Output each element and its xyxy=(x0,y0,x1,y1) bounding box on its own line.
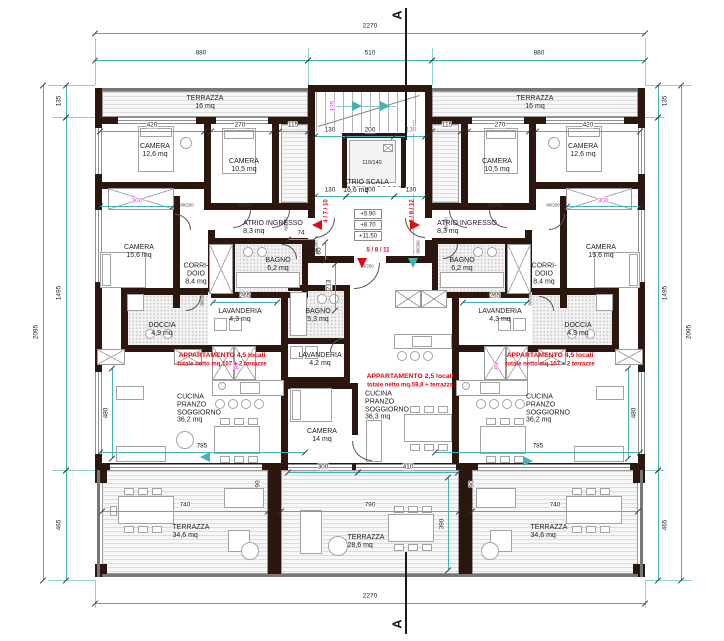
dimension-line xyxy=(432,131,461,132)
furniture xyxy=(486,418,496,425)
dimension-line xyxy=(394,136,425,137)
dimension-line xyxy=(658,470,659,580)
furniture xyxy=(568,128,600,137)
furniture xyxy=(248,418,258,425)
dimension-label: 265 xyxy=(490,292,501,299)
dimension-label: 410 xyxy=(403,463,414,470)
wall xyxy=(268,470,281,577)
level-label: +11.50 xyxy=(359,233,377,240)
x-cabinet xyxy=(97,349,125,365)
dimension-label: 480 xyxy=(102,408,109,419)
apartment-sublabel: totale netto mq.107 + 2 terrazze xyxy=(177,362,266,369)
furniture xyxy=(600,526,610,533)
dimension-line xyxy=(211,131,272,132)
room-label: CAMERA 10,5 mq xyxy=(482,158,512,174)
door-size-tag: 80/200 xyxy=(445,217,450,230)
route-arrow xyxy=(312,220,322,230)
dimension-line xyxy=(335,264,336,310)
window xyxy=(638,372,645,454)
dimension-label: 420 xyxy=(147,121,158,128)
furniture-round xyxy=(410,351,420,361)
unit-route-label: 5 / 8 / 11 xyxy=(366,248,389,255)
dimension-label: 465 xyxy=(55,520,62,531)
room-label: TERRAZZA 34,6 mq xyxy=(531,524,568,540)
dimension-line xyxy=(463,302,527,303)
dimension-line xyxy=(394,196,425,197)
furniture xyxy=(486,456,496,463)
dimension-line xyxy=(432,60,645,61)
furniture-round xyxy=(228,399,238,409)
dimension-line xyxy=(288,239,314,240)
furniture-round xyxy=(487,247,497,257)
dimension-label: 510 xyxy=(365,49,376,56)
dimension-label: 135 xyxy=(661,96,668,107)
closet-strip xyxy=(281,124,308,203)
dimension-line xyxy=(435,452,640,453)
furniture xyxy=(424,444,434,451)
dimension-line xyxy=(288,472,358,473)
door-size-tag: 80/200 xyxy=(285,217,290,230)
dimension-line xyxy=(95,603,645,604)
door-size-tag: 80/200 xyxy=(180,204,193,209)
furniture xyxy=(408,506,418,513)
wall xyxy=(452,345,619,352)
furniture xyxy=(596,386,624,400)
room-label: CORRI- DOIO 8,4 mq xyxy=(532,262,557,285)
room-label: CUCINA PRANZO SOGGIORNO 36,2 mq xyxy=(526,393,570,424)
room-label: DOCCIA 4,9 mq xyxy=(148,322,175,338)
dimension-label: 90 xyxy=(254,480,261,487)
furniture xyxy=(514,418,524,425)
x-cabinet xyxy=(421,290,447,308)
wall xyxy=(308,256,354,263)
dimension-label: 1495 xyxy=(661,286,668,300)
room-label: LAVANDERIA 4,3 mq xyxy=(478,308,521,324)
door-size-tag: 90/200 xyxy=(417,240,422,253)
furniture-round xyxy=(257,247,267,257)
furniture xyxy=(394,506,404,513)
furniture-round xyxy=(180,137,192,149)
room-label: TERRAZZA 16 mq xyxy=(517,95,554,111)
section-line xyxy=(405,8,407,140)
furniture-round xyxy=(241,399,251,409)
furniture xyxy=(127,294,144,311)
dimension-line xyxy=(472,511,638,512)
dimension-line xyxy=(281,511,459,512)
furniture xyxy=(102,254,111,286)
furniture-round xyxy=(548,137,560,149)
door-size-tag: 80/200 xyxy=(238,204,251,209)
dimension-label: 740 xyxy=(180,501,191,508)
dimension-line xyxy=(66,117,67,470)
parapet xyxy=(102,574,638,577)
dimension-label: 790 xyxy=(365,501,376,508)
furniture-round xyxy=(254,399,264,409)
window xyxy=(478,464,630,470)
wall xyxy=(612,288,619,348)
dimension-line xyxy=(100,206,173,207)
room-label: TERRAZZA 34,6 mq xyxy=(173,524,210,540)
dimension-line xyxy=(279,131,308,132)
furniture-round xyxy=(473,247,483,257)
dimension-label: 270 xyxy=(495,121,506,128)
wall xyxy=(204,203,314,210)
dimension-label: 880 xyxy=(196,49,207,56)
furniture xyxy=(480,426,526,454)
room-label: BAGNO 5,3 mq xyxy=(305,308,330,324)
direction-arrow xyxy=(352,101,362,111)
elevator-size-label: 110/140 xyxy=(362,160,381,166)
apartment-label: APPARTAMENTO 4,5 locali xyxy=(507,352,594,360)
door-size-tag: 80/200 xyxy=(529,292,534,305)
wall xyxy=(308,85,432,92)
furniture xyxy=(440,272,504,288)
furniture-round xyxy=(423,351,433,361)
guide-line xyxy=(308,48,309,85)
furniture-round xyxy=(328,536,348,556)
room-label: ATRIO SCALA 16,6 mq xyxy=(343,179,389,195)
x-cabinet xyxy=(615,349,643,365)
dimension-label: 130 xyxy=(406,126,417,133)
dimension-line xyxy=(346,196,394,197)
furniture-round xyxy=(317,294,327,304)
window xyxy=(95,128,102,174)
guide-line xyxy=(645,470,664,471)
dimension-line xyxy=(658,85,659,117)
door-size-tag: 80/200 xyxy=(546,204,559,209)
apartment-label: APPARTAMENTO 4,5 locali xyxy=(179,352,266,360)
x-cabinet xyxy=(383,144,393,152)
dimension-line xyxy=(536,131,640,132)
dimension-line xyxy=(95,33,645,34)
section-label: A xyxy=(391,619,406,628)
dimension-label: 1495 xyxy=(55,286,62,300)
furniture xyxy=(124,488,134,495)
room-label: CUCINA PRANZO SOGGIORNO 36,3 mq xyxy=(365,390,409,421)
furniture xyxy=(116,386,144,400)
dimension-line xyxy=(213,302,277,303)
dimension-label: 2270 xyxy=(363,592,377,599)
furniture xyxy=(404,414,452,442)
furniture-round xyxy=(462,382,470,390)
dimension-line xyxy=(448,477,449,570)
room-label: BAGNO 6,2 mq xyxy=(265,257,290,273)
window xyxy=(638,128,645,174)
guide-line xyxy=(52,470,95,471)
furniture-round xyxy=(243,247,253,257)
room-label: CAMERA 15,6 mq xyxy=(124,244,154,260)
dimension-label: 2095 xyxy=(32,325,39,339)
room-label: CORRI- DOIO 8,4 mq xyxy=(184,262,209,285)
wall xyxy=(121,345,288,352)
apartment-label: APPARTAMENTO 2,5 locali xyxy=(367,373,454,381)
wall xyxy=(344,285,350,344)
furniture xyxy=(140,128,172,137)
room-label: DOCCIA 4,9 mq xyxy=(564,322,591,338)
furniture xyxy=(586,488,596,495)
furniture-round xyxy=(218,382,226,390)
section-line xyxy=(405,552,407,634)
section-label: A xyxy=(391,10,406,19)
floor-plan-drawing: 2270880510880227020951351495465209513514… xyxy=(0,0,724,641)
dimension-label: 115 xyxy=(442,121,452,128)
dimension-line xyxy=(658,117,659,470)
room-label: CAMERA 15,6 mq xyxy=(586,244,616,260)
room-label: CUCINA PRANZO SOGGIORNO 36,2 mq xyxy=(177,393,221,424)
dimension-line xyxy=(325,242,326,260)
furniture-round xyxy=(481,542,499,560)
guide-line xyxy=(432,48,433,85)
wall xyxy=(352,383,358,435)
furniture-round xyxy=(502,399,512,409)
furniture xyxy=(152,488,162,495)
furniture xyxy=(224,488,264,508)
furniture xyxy=(572,526,582,533)
route-arrow xyxy=(410,220,420,230)
room-label: LAVANDERIA 4,3 mq xyxy=(218,308,261,324)
dimension-label: 300 xyxy=(132,197,143,204)
door-arc xyxy=(352,441,372,461)
dimension-label: 130 xyxy=(325,186,336,193)
furniture xyxy=(240,382,260,394)
dimension-label: 270 xyxy=(235,121,246,128)
furniture xyxy=(234,456,244,463)
dimension-line xyxy=(102,511,268,512)
wall xyxy=(308,85,315,195)
apartment-sublabel: totale netto mq.59,8 + terrazza xyxy=(367,383,453,390)
direction-arrow xyxy=(523,456,533,466)
parapet xyxy=(432,88,638,91)
furniture-round xyxy=(489,399,499,409)
wall xyxy=(281,348,288,463)
furniture-round xyxy=(515,399,525,409)
dimension-label: 89 xyxy=(493,362,500,369)
furniture xyxy=(438,444,448,451)
room-label: TERRAZZA 16 mq xyxy=(187,95,224,111)
guide-line xyxy=(48,85,95,86)
dimension-label: 880 xyxy=(534,49,545,56)
furniture xyxy=(596,294,613,311)
furniture xyxy=(248,456,258,463)
furniture xyxy=(500,418,510,425)
furniture xyxy=(422,544,432,551)
dimension-label: 480 xyxy=(630,408,637,419)
furniture xyxy=(476,488,516,508)
unit-route-label: 4 / 7 / 10 xyxy=(324,199,331,222)
dimension-line xyxy=(66,470,67,580)
dimension-line xyxy=(43,85,44,580)
room-label: CAMERA 10,5 mq xyxy=(229,158,259,174)
room-label: BAGNO 6,2 mq xyxy=(449,257,474,273)
furniture xyxy=(292,390,301,420)
furniture xyxy=(116,446,166,462)
furniture xyxy=(480,382,500,394)
furniture xyxy=(410,406,420,413)
dimension-label: 300 xyxy=(598,197,609,204)
furniture xyxy=(424,406,434,413)
furniture xyxy=(394,544,404,551)
dimension-label: 135 xyxy=(329,101,336,112)
dimension-label: 465 xyxy=(661,520,668,531)
furniture xyxy=(388,514,434,542)
dimension-line xyxy=(95,60,308,61)
closet-strip xyxy=(432,124,459,203)
dimension-line xyxy=(100,131,204,132)
window xyxy=(110,464,262,470)
wall xyxy=(633,470,645,483)
furniture xyxy=(220,418,230,425)
parapet xyxy=(97,470,100,577)
window xyxy=(95,372,102,454)
wall xyxy=(426,203,536,210)
dimension-label: 130 xyxy=(325,126,336,133)
dimension-label: 130 xyxy=(406,186,417,193)
dimension-label: 740 xyxy=(550,501,561,508)
furniture xyxy=(600,488,610,495)
direction-arrow xyxy=(380,101,390,111)
furniture xyxy=(500,456,510,463)
furniture xyxy=(236,272,300,288)
x-cabinet xyxy=(209,244,233,294)
furniture-round xyxy=(176,431,194,449)
level-label: +5.90 xyxy=(360,211,375,218)
room-label: ATRIO INGRESSO 8,3 mq xyxy=(243,220,303,236)
dimension-label: 135 xyxy=(55,96,62,107)
dimension-line xyxy=(66,85,67,117)
direction-arrow xyxy=(408,258,418,268)
furniture xyxy=(138,488,148,495)
parapet xyxy=(640,470,643,577)
dimension-line xyxy=(681,85,682,580)
dimension-label: 785 xyxy=(533,442,544,449)
furniture xyxy=(629,254,638,286)
level-label: +8.70 xyxy=(360,222,375,229)
wall xyxy=(452,348,459,463)
furniture xyxy=(438,406,448,413)
route-arrow xyxy=(357,258,367,268)
furniture-round xyxy=(397,351,407,361)
room-label: LAVANDERIA 4,2 mq xyxy=(298,352,341,368)
wall xyxy=(432,238,438,298)
dimension-label: 785 xyxy=(197,442,208,449)
furniture xyxy=(412,336,432,347)
dimension-line xyxy=(315,136,346,137)
furniture xyxy=(214,426,260,454)
x-cabinet xyxy=(507,244,531,294)
wall xyxy=(344,344,350,383)
direction-arrow xyxy=(200,452,210,462)
dimension-label: 390 xyxy=(438,519,445,530)
room-label: CAMERA 12,6 mq xyxy=(140,143,170,159)
dimension-line xyxy=(346,136,394,137)
room-label: TERRAZZA 28,6 mq xyxy=(348,534,385,550)
furniture xyxy=(410,444,420,451)
door-size-tag: 80/200 xyxy=(488,204,501,209)
guide-line xyxy=(645,117,664,118)
dimension-line xyxy=(308,60,432,61)
dimension-line xyxy=(112,368,113,458)
room-label: CAMERA 14 mq xyxy=(307,428,337,444)
door-arc xyxy=(175,214,191,230)
furniture xyxy=(138,526,148,533)
furniture xyxy=(300,510,322,554)
dimension-label: 200 xyxy=(365,126,376,133)
furniture xyxy=(572,488,582,495)
dimension-label: 420 xyxy=(583,121,594,128)
dimension-label: 90 xyxy=(468,480,475,487)
furniture-round xyxy=(241,542,259,560)
furniture xyxy=(152,526,162,533)
dimension-label: 300 xyxy=(318,463,329,470)
wall xyxy=(281,298,288,348)
furniture xyxy=(422,506,432,513)
furniture xyxy=(586,526,596,533)
apartment-sublabel: totale netto mq.107 + 2 terrazze xyxy=(505,362,594,369)
dimension-label: 265 xyxy=(240,292,251,299)
dimension-label: 2095 xyxy=(685,325,692,339)
dimension-line xyxy=(628,368,629,458)
furniture xyxy=(124,526,134,533)
dimension-line xyxy=(315,196,346,197)
x-cabinet xyxy=(395,290,421,308)
guide-line xyxy=(48,580,95,581)
furniture xyxy=(408,544,418,551)
furniture-round xyxy=(476,399,486,409)
furniture xyxy=(574,446,624,462)
door-size-tag: 80/200 xyxy=(201,292,206,305)
dimension-label: 115 xyxy=(288,121,298,128)
dimension-label: 213 xyxy=(325,280,332,291)
wall xyxy=(452,298,459,348)
guide-line xyxy=(52,117,95,118)
guide-line xyxy=(645,580,692,581)
door-size-tag: 90/200 xyxy=(315,240,320,253)
dimension-line xyxy=(358,472,458,473)
furniture xyxy=(234,418,244,425)
wall xyxy=(401,133,406,188)
dimension-line xyxy=(567,206,640,207)
furniture xyxy=(220,456,230,463)
dimension-label: 2270 xyxy=(363,22,377,29)
dimension-line xyxy=(468,131,529,132)
guide-line xyxy=(645,85,692,86)
wall xyxy=(425,85,432,195)
parapet xyxy=(102,88,308,91)
room-label: CAMERA 12,6 mq xyxy=(568,143,598,159)
